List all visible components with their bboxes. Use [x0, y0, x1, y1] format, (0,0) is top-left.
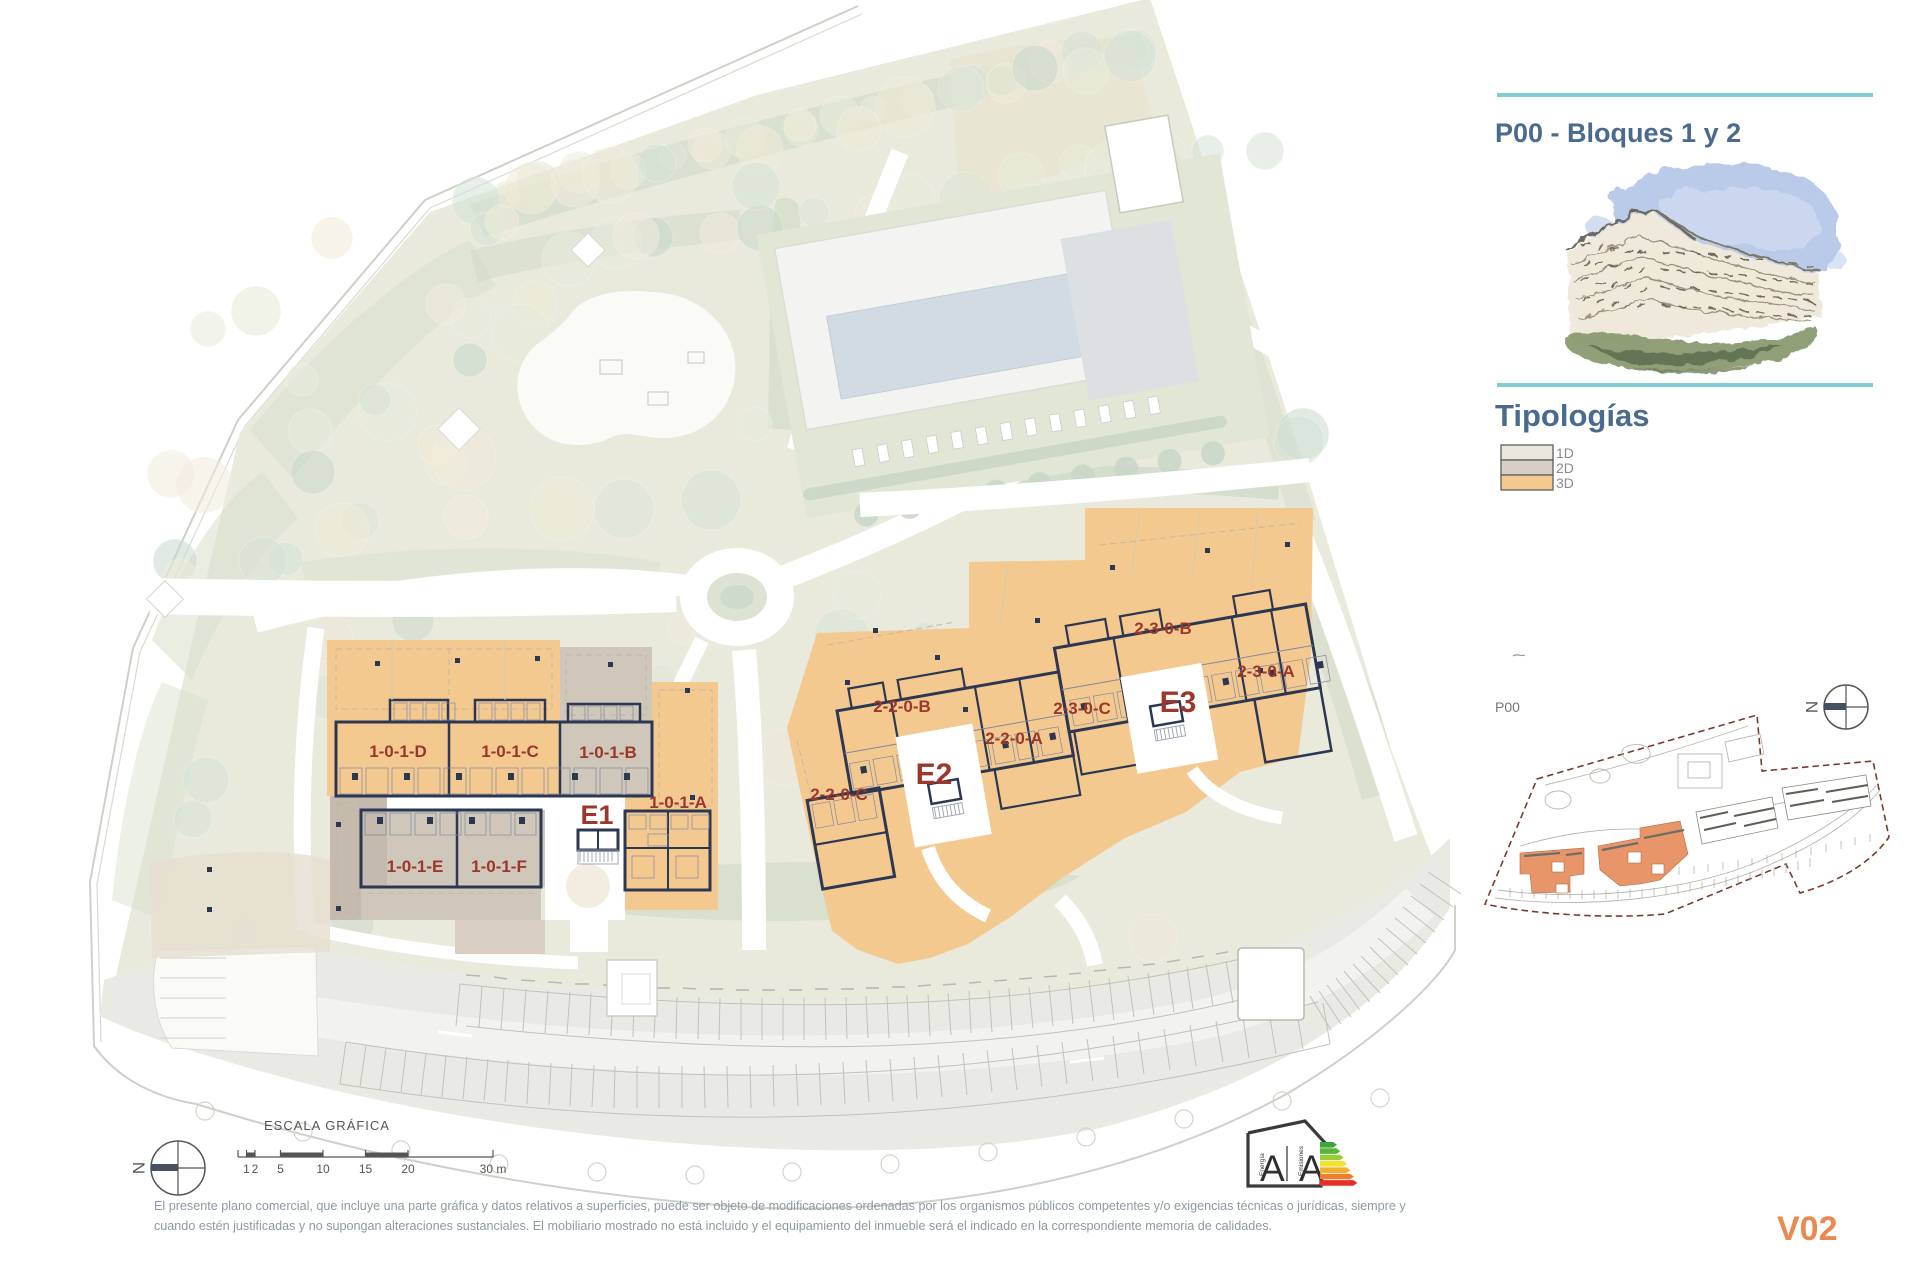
svg-text:El presente plano comercial, q: El presente plano comercial, que incluye…	[154, 1199, 1406, 1213]
svg-text:5: 5	[277, 1162, 284, 1176]
svg-text:P00 - Bloques 1 y 2: P00 - Bloques 1 y 2	[1495, 118, 1741, 148]
svg-text:15: 15	[359, 1162, 373, 1176]
svg-text:A: A	[1260, 1148, 1285, 1189]
svg-text:1-0-1-D: 1-0-1-D	[369, 742, 427, 761]
svg-text:cuando estén justificadas y no: cuando estén justificadas y no supongan …	[154, 1219, 1272, 1233]
svg-text:Tipologías: Tipologías	[1495, 398, 1649, 433]
svg-text:1-0-1-A: 1-0-1-A	[649, 793, 707, 812]
svg-text:1-0-1-F: 1-0-1-F	[471, 857, 527, 876]
svg-text:N: N	[129, 1162, 148, 1174]
svg-text:2-3-0-C: 2-3-0-C	[1053, 699, 1111, 718]
svg-text:1-0-1-C: 1-0-1-C	[481, 742, 539, 761]
svg-text:2D: 2D	[1556, 460, 1574, 476]
svg-text:P00: P00	[1495, 699, 1520, 715]
svg-text:ESCALA GRÁFICA: ESCALA GRÁFICA	[264, 1118, 390, 1133]
svg-text:E1: E1	[580, 800, 613, 830]
svg-text:E3: E3	[1160, 686, 1197, 719]
svg-text:30 m: 30 m	[480, 1162, 507, 1176]
svg-text:2-2-0-B: 2-2-0-B	[873, 697, 931, 716]
svg-text:1-0-1-B: 1-0-1-B	[579, 743, 637, 762]
svg-text:1-0-1-E: 1-0-1-E	[387, 857, 444, 876]
svg-text:2-2-0-A: 2-2-0-A	[985, 729, 1043, 748]
svg-text:20: 20	[401, 1162, 415, 1176]
svg-text:V02: V02	[1777, 1210, 1838, 1248]
svg-text:2-2-0-C: 2-2-0-C	[810, 785, 868, 804]
svg-text:E2: E2	[916, 758, 953, 791]
svg-text:2: 2	[252, 1162, 259, 1176]
svg-text:2-3-0-A: 2-3-0-A	[1237, 662, 1295, 681]
svg-text:2-3-0-B: 2-3-0-B	[1134, 619, 1192, 638]
svg-text:1D: 1D	[1556, 445, 1574, 461]
svg-text:10: 10	[316, 1162, 330, 1176]
svg-text:1: 1	[243, 1162, 250, 1176]
svg-text:3D: 3D	[1556, 475, 1574, 491]
svg-text:N: N	[1802, 701, 1821, 713]
